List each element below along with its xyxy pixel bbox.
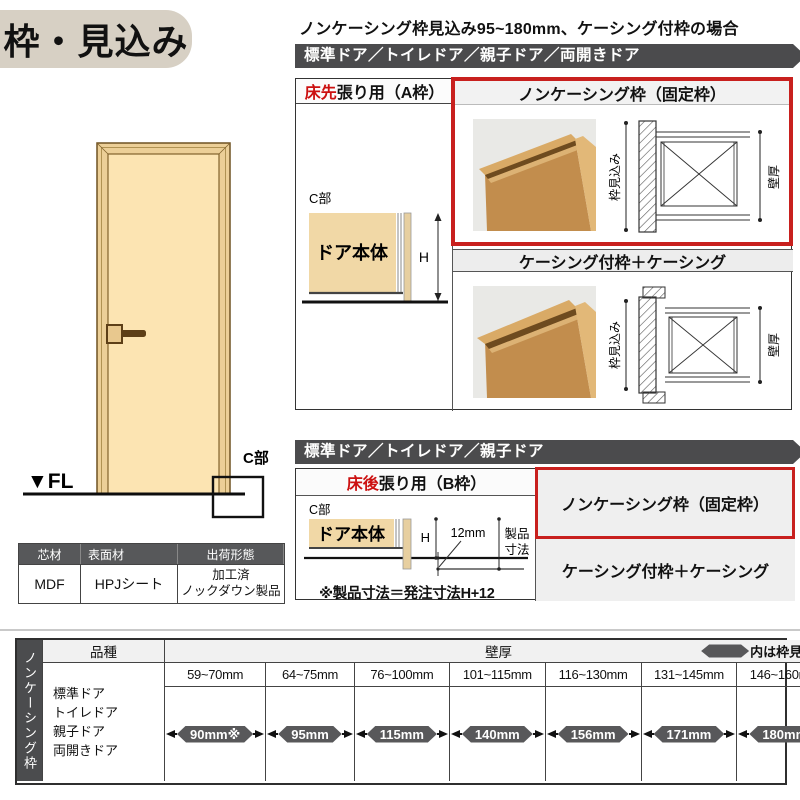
frame-hatched-1 [639, 121, 656, 232]
arrow-right-icon [535, 730, 544, 738]
door-panel [108, 154, 219, 494]
depth-badge: 180mm [749, 726, 800, 743]
product-size-line1: 製品 [504, 527, 529, 541]
product-size-note: ※製品寸法＝発注寸法H+12 [319, 582, 535, 603]
page-title: 枠・見込み [3, 13, 188, 65]
section-b-frame-types: 床後張り用（B枠） C部 ドア本体 H 12mm 製品 寸法 ※製品寸法＝発注寸 [295, 468, 792, 600]
frame-depth-cell: 90mm※ [164, 687, 265, 781]
arrow-right-icon [726, 730, 735, 738]
wall-range: 101~115mm [449, 663, 545, 687]
legend-hexagon-icon [701, 645, 749, 658]
depth-badge: 156mm [558, 726, 629, 743]
casing-tab-bottom [643, 392, 665, 403]
door-body-label-b: ドア本体 [317, 524, 386, 544]
b-frame-header-rest: 張り用（B枠） [379, 470, 487, 494]
arrow-right-icon [439, 730, 448, 738]
door-types-bar-b: 標準ドア／トイレドア／親子ドア [295, 440, 800, 464]
noncasing-cross-section: 枠見込み 壁厚 [608, 115, 791, 240]
arrow-left-icon [166, 730, 175, 738]
b-frame-header: 床後張り用（B枠） [296, 469, 537, 496]
table-vertical-label: ノンケーシング枠 [17, 640, 42, 781]
wall-range: 146~160mm [736, 663, 800, 687]
wall-thickness-label-1: 壁厚 [766, 165, 781, 189]
frame-depth-cell: 115mm [354, 687, 449, 781]
door-types-bar-a: 標準ドア／トイレドア／親子ドア／両開きドア [295, 44, 800, 68]
frame-depth-cell: 140mm [449, 687, 545, 781]
c-part-label-a: C部 [309, 191, 331, 206]
page-title-block: 枠・見込み [0, 10, 192, 68]
material-surface-value: HPJシート [81, 564, 178, 603]
arrow-left-icon [267, 730, 276, 738]
kind-header: 品種 [42, 640, 164, 663]
legend: 内は枠見込み [701, 642, 800, 661]
noncasing-frame-photo [473, 119, 596, 231]
arrow-left-icon [643, 730, 652, 738]
a-frame-header-red: 床先 [305, 79, 337, 103]
material-header-core: 芯材 [19, 544, 81, 564]
legend-text: 内は枠見込み [750, 642, 800, 661]
depth-badge: 115mm [367, 726, 437, 743]
noncasing-cell-b: ノンケーシング枠（固定枠） [535, 467, 795, 539]
a-frame-section-diagram: C部 ドア本体 H [296, 104, 453, 411]
fl-label: ▼FL [27, 470, 74, 493]
frame-depth-cell: 180mm [736, 687, 800, 781]
frame-strip [404, 213, 411, 302]
door-illustration: ▼FL C部 [15, 130, 285, 530]
arrow-left-icon [451, 730, 460, 738]
arrow-left-icon [547, 730, 556, 738]
arrow-left-icon [356, 730, 365, 738]
casing-cell-b: ケーシング付枠＋ケーシング [535, 539, 795, 601]
catalog-page: 枠・見込み ノンケーシング枠見込み95~180mm、ケーシング付枠の場合 標準ド… [0, 0, 800, 800]
door-handle-lever [119, 330, 146, 337]
h-dimension-label-a: H [419, 249, 429, 265]
c-part-callout-label: C部 [243, 449, 269, 467]
h-dimension-label-b: H [421, 530, 430, 545]
noncasing-header-a: ノンケーシング枠（固定枠） [455, 81, 789, 105]
material-shipping-value: 加工済 ノックダウン製品 [178, 564, 284, 603]
depth-badge: 90mm※ [177, 726, 253, 743]
arrow-right-icon [631, 730, 640, 738]
depth-badge: 95mm [278, 726, 342, 743]
frame-depth-cell: 171mm [641, 687, 737, 781]
wall-thickness-label-2: 壁厚 [766, 333, 781, 357]
material-table: 芯材 表面材 出荷形態 MDF HPJシート 加工済 ノックダウン製品 [18, 543, 285, 604]
wall-range: 59~70mm [164, 663, 265, 687]
section-separator [0, 629, 800, 631]
casing-frame-photo [473, 286, 596, 398]
depth-badge: 171mm [654, 726, 725, 743]
material-core-value: MDF [19, 564, 81, 603]
a-frame-header-rest: 張り用（A枠） [337, 79, 445, 103]
frame-depth-cell: 95mm [265, 687, 354, 781]
a-frame-header: 床先張り用（A枠） [296, 79, 453, 104]
b-frame-section-diagram: C部 ドア本体 H 12mm 製品 寸法 [296, 498, 538, 578]
frame-hatched-2 [639, 297, 656, 393]
casing-header-a: ケーシング付枠＋ケーシング [452, 249, 793, 272]
door-type: 両開きドア [53, 741, 164, 760]
arrow-right-icon [344, 730, 353, 738]
door-type: トイレドア [53, 703, 164, 722]
depth-badge: 140mm [462, 726, 533, 743]
b-frame-header-red: 床後 [347, 470, 379, 494]
frame-strip-b [403, 519, 411, 569]
door-type: 親子ドア [53, 722, 164, 741]
arrow-right-icon [255, 730, 264, 738]
frame-depth-size-table: ノンケーシング枠 品種 壁厚 内は枠見込み 標準ドア トイレドア 親子ドア 両開… [15, 638, 787, 785]
wall-range: 64~75mm [265, 663, 354, 687]
shipping-line1: 加工済 [212, 568, 250, 584]
door-body-label-a: ドア本体 [316, 242, 389, 263]
door-type-list: 標準ドア トイレドア 親子ドア 両開きドア [42, 663, 164, 781]
wall-header-text: 壁厚 [485, 641, 512, 661]
material-header-surface: 表面材 [81, 544, 178, 564]
arrow-left-icon [738, 730, 747, 738]
section-a-frame-types: 床先張り用（A枠） ノンケーシング枠（固定枠） ケーシング付枠＋ケーシング C部… [295, 78, 792, 410]
door-type: 標準ドア [53, 684, 164, 703]
wall-range: 131~145mm [641, 663, 737, 687]
wall-thickness-header: 壁厚 内は枠見込み [164, 640, 800, 663]
wall-range: 116~130mm [545, 663, 641, 687]
shipping-line2: ノックダウン製品 [181, 584, 280, 600]
product-size-line2: 寸法 [504, 543, 529, 557]
casing-cross-section: 枠見込み 壁厚 [608, 281, 791, 409]
casing-tab-top [643, 287, 665, 298]
material-header-shipping: 出荷形態 [178, 544, 284, 564]
page-subtitle: ノンケーシング枠見込み95~180mm、ケーシング付枠の場合 [299, 15, 794, 39]
frame-depth-label-2: 枠見込み [608, 321, 622, 369]
frame-depth-label-1: 枠見込み [608, 153, 622, 201]
wall-range: 76~100mm [354, 663, 449, 687]
c-part-label-b: C部 [309, 502, 331, 517]
frame-depth-cell: 156mm [545, 687, 641, 781]
gap-12mm-label: 12mm [451, 526, 486, 540]
door-handle-rosette [107, 325, 122, 343]
